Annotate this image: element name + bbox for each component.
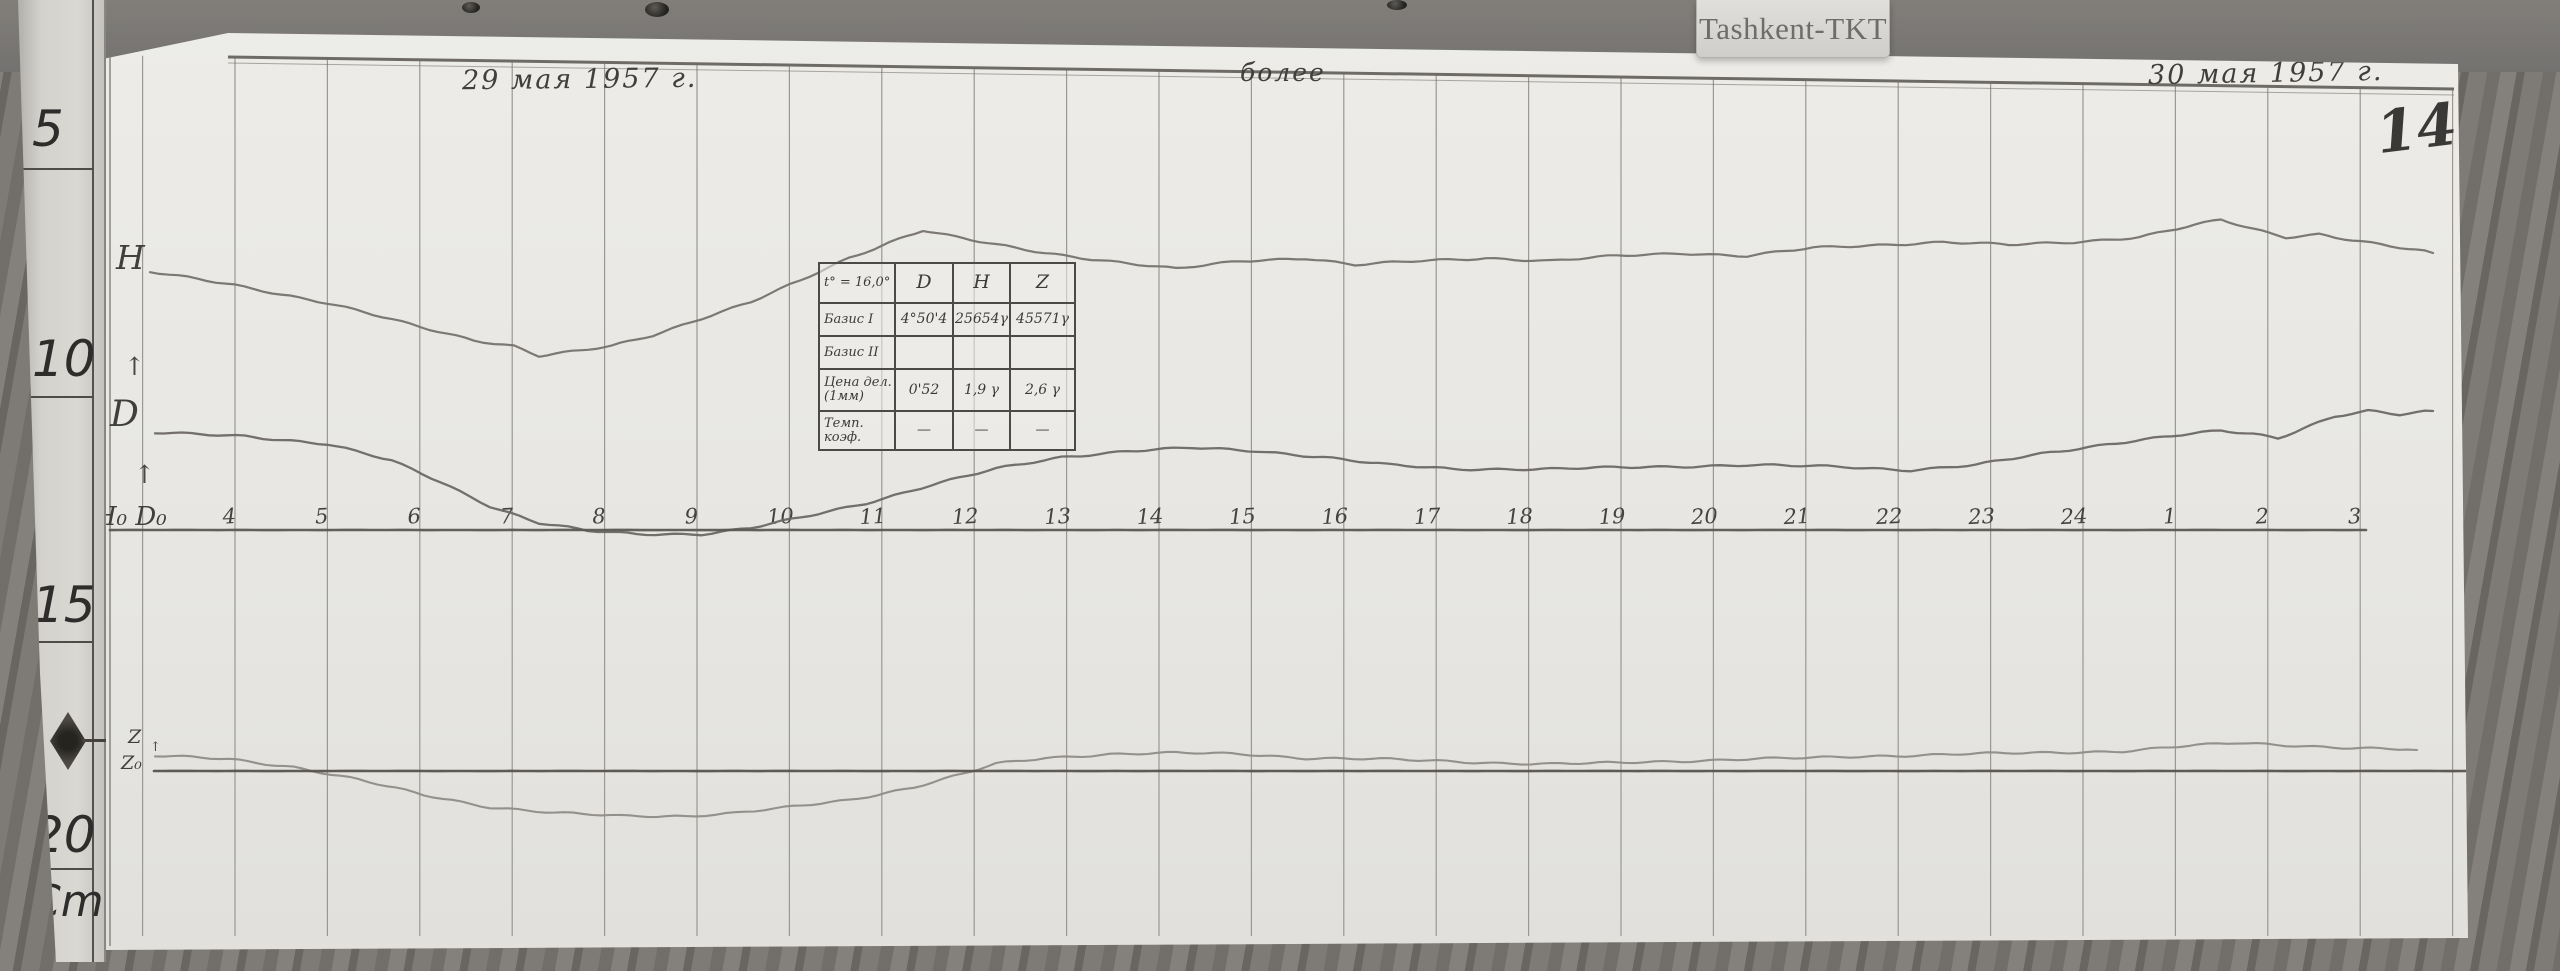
hour-tick-label: 13 xyxy=(1044,504,1072,529)
pin-icon xyxy=(645,2,669,17)
ruler-pin-icon xyxy=(50,712,86,770)
trace-label-z: Z xyxy=(128,726,141,748)
hour-tick-label: 17 xyxy=(1413,504,1442,529)
up-arrow-icon: ↑ xyxy=(150,740,161,755)
table-cell: 4°50'4 xyxy=(896,304,954,337)
scanned-magnetogram-photo: 456789101112131415161718192021222324123 … xyxy=(0,0,2560,971)
table-cell xyxy=(954,337,1011,370)
ruler-mark-label: 10 xyxy=(32,330,96,388)
hour-tick-label: 4 xyxy=(221,504,237,529)
hour-tick-label: 16 xyxy=(1321,504,1349,529)
hour-tick-label: 6 xyxy=(407,504,422,529)
hour-tick-label: 24 xyxy=(2059,504,2088,529)
pin-icon xyxy=(1387,0,1407,10)
hour-tick-label: 11 xyxy=(859,504,887,529)
table-cell: 1,9 γ xyxy=(954,370,1011,412)
hour-tick-label: 19 xyxy=(1598,504,1626,529)
up-arrow-icon: ↑ xyxy=(134,460,155,489)
table-cell: 45571γ xyxy=(1011,304,1074,337)
hour-tick-label: 1 xyxy=(2162,504,2177,529)
chart-svg: 456789101112131415161718192021222324123 xyxy=(90,0,2472,954)
hour-tick-label: 7 xyxy=(499,504,514,529)
up-arrow-icon: ↑ xyxy=(124,352,145,381)
trace-z xyxy=(155,743,2417,817)
table-cell xyxy=(1011,337,1074,370)
hour-tick-label: 5 xyxy=(314,504,329,529)
table-cell: Базис I xyxy=(820,304,896,337)
date-left: 29 мая 1957 г. xyxy=(462,63,698,96)
trace-d xyxy=(155,410,2433,535)
table-cell: D xyxy=(896,264,954,304)
hour-tick-label: 18 xyxy=(1506,504,1534,529)
table-cell: — xyxy=(896,412,954,449)
ruler-tick xyxy=(20,396,94,398)
table-cell: — xyxy=(1011,412,1074,449)
hour-tick-label: 22 xyxy=(1874,504,1903,529)
station-label: Tashkent-TKT xyxy=(1696,0,1890,58)
table-cell: t° = 16,0° xyxy=(820,264,896,304)
hour-tick-label: 15 xyxy=(1228,504,1256,529)
hour-tick-label: 8 xyxy=(592,504,607,529)
hour-tick-label: 9 xyxy=(684,504,699,529)
hour-tick-label: 10 xyxy=(766,504,794,529)
hour-tick-label: 20 xyxy=(1689,504,1718,529)
ruler-mark-label: 5 xyxy=(32,100,64,158)
ruler-tick xyxy=(20,168,94,170)
trace-h xyxy=(150,220,2433,357)
table-cell: Базис II xyxy=(820,337,896,370)
table-cell: Темп. коэф. xyxy=(820,412,896,449)
hour-tick-label: 23 xyxy=(1967,504,1996,529)
center-note: более xyxy=(1240,58,1326,87)
ruler-mark-label: 15 xyxy=(32,576,96,634)
hour-tick-label: 14 xyxy=(1136,504,1164,529)
trace-label-h: Н xyxy=(116,238,145,277)
hour-tick-label: 3 xyxy=(2347,504,2362,529)
ruler-pin-line xyxy=(82,739,108,742)
hour-tick-label: 12 xyxy=(951,504,979,529)
hour-tick-label: 2 xyxy=(2254,504,2270,529)
trace-label-d: D xyxy=(110,394,139,435)
baseline-table: t° = 16,0°DНZБазис I4°50'425654γ45571γБа… xyxy=(818,262,1076,451)
table-cell: — xyxy=(954,412,1011,449)
chart-paper: 456789101112131415161718192021222324123 … xyxy=(90,0,2472,954)
table-cell: Н xyxy=(954,264,1011,304)
table-cell: Цена дел. (1мм) xyxy=(820,370,896,412)
table-cell: Z xyxy=(1011,264,1074,304)
table-cell: 0'52 xyxy=(896,370,954,412)
ruler-edge-line xyxy=(104,0,106,962)
table-cell xyxy=(896,337,954,370)
table-cell: 2,6 γ xyxy=(1011,370,1074,412)
hour-tick-label: 21 xyxy=(1782,504,1811,529)
pin-icon xyxy=(462,2,480,13)
table-cell: 25654γ xyxy=(954,304,1011,337)
trace-label-z0: Z₀ xyxy=(121,752,142,774)
